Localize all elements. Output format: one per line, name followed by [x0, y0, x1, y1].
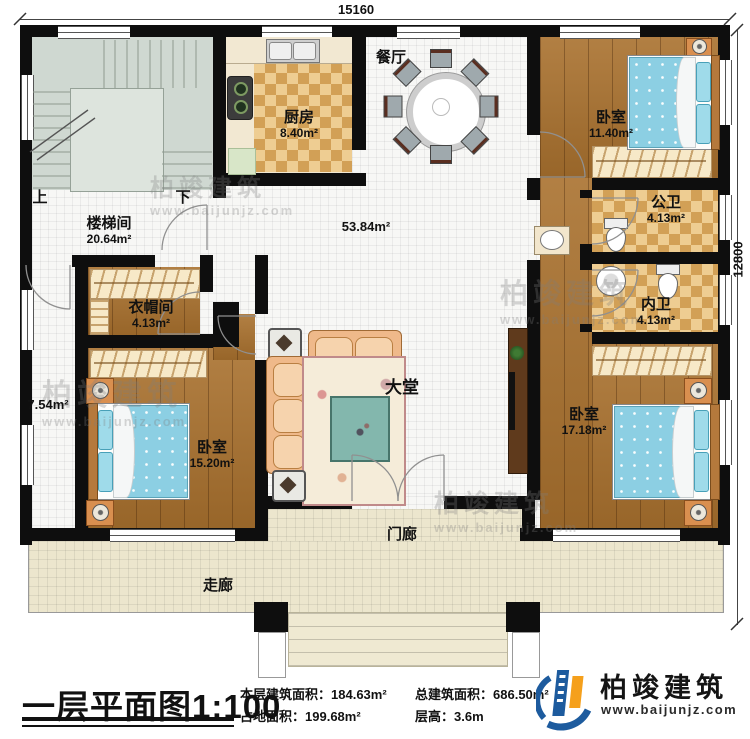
- room-label-dining: 餐厅: [376, 50, 406, 67]
- stair-up-label: 上: [32, 190, 47, 207]
- room-label-bedroom-se: 卧室 17.18m²: [562, 407, 607, 437]
- room-label-bedroom-sw: 卧室 15.20m²: [190, 440, 235, 470]
- room-label-bedroom-ne: 卧室 11.40m²: [589, 110, 633, 140]
- room-label-stairwell: 楼梯间 20.64m²: [86, 216, 131, 246]
- door-and-stair-overlay: [0, 0, 750, 739]
- room-label-kitchen: 厨房 8.40m²: [280, 110, 318, 140]
- room-label-veranda: 走廊: [203, 578, 233, 595]
- room-label-porch: 门廊: [387, 527, 417, 544]
- room-label-hall: 大堂: [385, 379, 419, 398]
- floor-plan: 15160 12800 柏竣建筑 www.baijunjz.com 柏竣建筑 w…: [0, 0, 750, 739]
- stair-down-label: 下: [175, 190, 190, 207]
- room-label-public-bath: 公卫 4.13m²: [647, 195, 685, 225]
- room-label-inner-bath: 内卫 4.13m²: [637, 297, 675, 327]
- room-label-cloakroom: 衣帽间 4.13m²: [128, 300, 173, 330]
- hall-area-label: 53.84m²: [342, 220, 390, 235]
- corridor-area-label: 7.54m²: [27, 398, 68, 413]
